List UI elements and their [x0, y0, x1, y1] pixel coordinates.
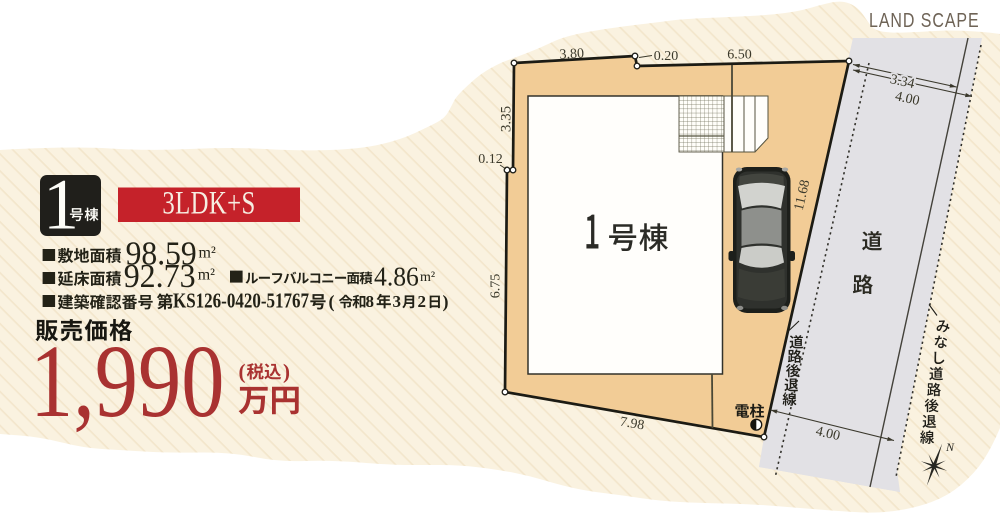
svg-text:(: (: [329, 292, 335, 313]
svg-text:4.86: 4.86: [374, 262, 419, 292]
svg-text:(: (: [239, 360, 246, 384]
svg-text:1,990: 1,990: [30, 324, 224, 439]
svg-text:3LDK+S: 3LDK+S: [162, 185, 255, 221]
svg-text:3: 3: [393, 292, 402, 311]
svg-text:): ): [283, 360, 290, 384]
svg-text:2: 2: [418, 292, 427, 311]
svg-text:6.75: 6.75: [489, 274, 504, 299]
svg-text:0.12: 0.12: [478, 152, 503, 167]
svg-text:1: 1: [43, 165, 79, 245]
svg-text:8: 8: [366, 292, 375, 311]
svg-text:N: N: [945, 440, 955, 454]
svg-text:m²: m²: [420, 270, 435, 285]
svg-text:0.20: 0.20: [654, 49, 679, 64]
svg-text:LAND SCAPE: LAND SCAPE: [869, 8, 980, 31]
svg-text:3.35: 3.35: [499, 106, 515, 132]
svg-text:m²: m²: [199, 245, 216, 262]
svg-text:3.80: 3.80: [559, 46, 584, 62]
svg-text:6.50: 6.50: [727, 48, 752, 63]
svg-text:KS126-0420-51767: KS126-0420-51767: [173, 290, 309, 313]
svg-text:): ): [443, 292, 449, 313]
svg-text:m²: m²: [198, 267, 215, 284]
